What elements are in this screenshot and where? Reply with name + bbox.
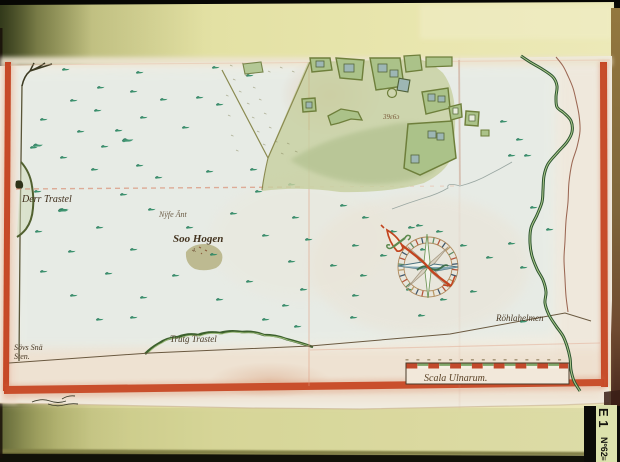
svg-text:Sten.: Sten. (14, 352, 30, 361)
svg-text:≡: ≡ (599, 456, 608, 461)
svg-text:4.: 4. (192, 247, 197, 254)
svg-text:Scala Ulnarum.: Scala Ulnarum. (424, 373, 487, 384)
svg-text:Nº62: Nº62 (599, 437, 609, 457)
svg-text:Trutg Trastel: Trutg Trastel (170, 334, 217, 344)
svg-text:39ɛ6ɔ: 39ɛ6ɔ (382, 113, 399, 121)
svg-text:Röhlahelmen: Röhlahelmen (495, 313, 544, 323)
svg-text:Soo Hogen: Soo Hogen (173, 233, 223, 245)
svg-text:E 1: E 1 (596, 408, 611, 428)
svg-text:Sövs Snä: Sövs Snä (14, 343, 43, 352)
svg-text:Derr Trastel: Derr Trastel (21, 194, 72, 205)
svg-text:Nÿfe Änt: Nÿfe Änt (158, 210, 188, 219)
